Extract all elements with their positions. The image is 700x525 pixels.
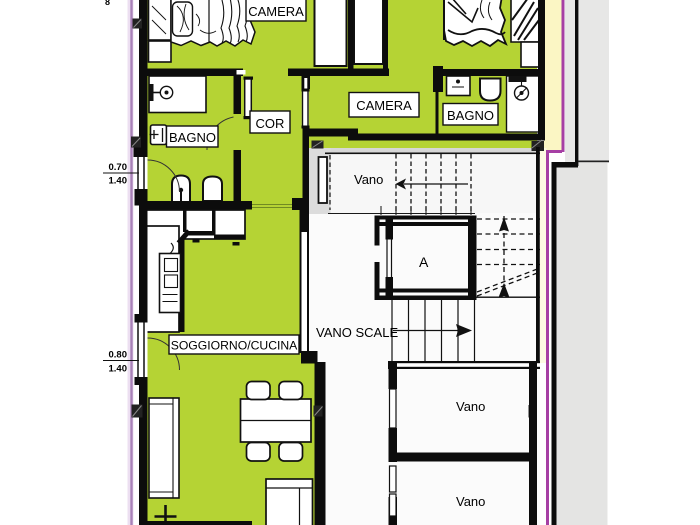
svg-text:0.70: 0.70: [109, 162, 128, 173]
svg-text:8: 8: [105, 0, 110, 7]
svg-text:Vano: Vano: [456, 494, 485, 509]
svg-text:Vano: Vano: [354, 172, 383, 187]
svg-text:COR: COR: [256, 116, 285, 131]
svg-text:Vano: Vano: [456, 399, 485, 414]
svg-text:CAMERA: CAMERA: [356, 98, 412, 113]
svg-text:0.80: 0.80: [109, 350, 128, 361]
svg-text:BAGNO: BAGNO: [447, 108, 494, 123]
svg-text:1.40: 1.40: [109, 364, 128, 375]
svg-text:A: A: [419, 254, 429, 270]
svg-text:VANO SCALE: VANO SCALE: [316, 325, 398, 340]
svg-text:SOGGIORNO/CUCINA: SOGGIORNO/CUCINA: [171, 339, 298, 353]
svg-text:1.40: 1.40: [109, 176, 128, 187]
svg-text:CAMERA: CAMERA: [248, 4, 304, 19]
svg-text:BAGNO: BAGNO: [169, 130, 216, 145]
